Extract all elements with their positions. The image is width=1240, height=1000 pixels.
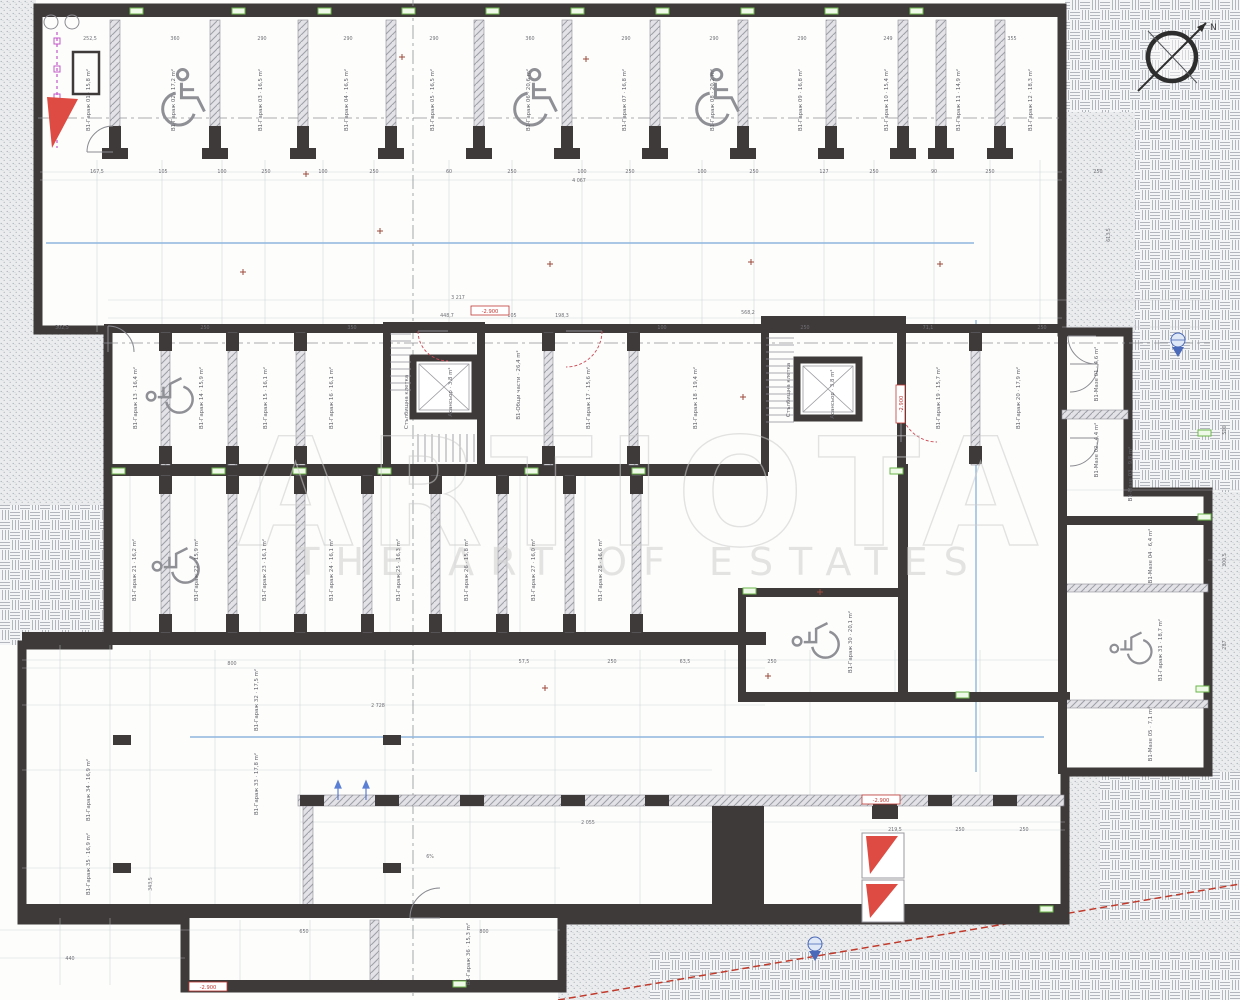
dim-label: 167,5 — [90, 169, 104, 175]
brand-watermark: ARTIOTA THE ART OF ESTATES — [237, 407, 1052, 584]
dim-label: 250 — [749, 169, 758, 175]
room-label: В1-Гараж 23 · 16,1 m² — [261, 539, 268, 601]
floor-plan-svg: N ARTIOTA THE ART OF ESTATES 252,5360290… — [0, 0, 1240, 1000]
dim-label: 290 — [797, 36, 806, 42]
dim-label: 252,5 — [83, 36, 97, 42]
room-label: В1-Мазе 01 · 4,6 m² — [1093, 347, 1100, 402]
room-label: В1-Гараж 13 · 16,4 m² — [132, 367, 139, 429]
room-label: В1-Гараж 33 · 17,8 m² — [253, 753, 260, 815]
svg-text:-2.900: -2.900 — [482, 309, 499, 315]
dim-label: 448,7 — [440, 313, 454, 319]
level-badge: -2.900 — [471, 306, 509, 315]
dim-label: 290 — [429, 36, 438, 42]
room-label: В1-Гараж 11 · 14,9 m² — [955, 69, 962, 131]
room-label: В1-Мазе 05 · 7,1 m² — [1147, 707, 1154, 762]
dim-label: 250 — [369, 169, 378, 175]
svg-text:-2.900: -2.900 — [200, 985, 217, 991]
dim-label: 290 — [343, 36, 352, 42]
dim-label: 650 — [299, 929, 308, 935]
level-badge: -2.900 — [896, 385, 905, 423]
dim-label: 2 055 — [581, 820, 595, 826]
room-label: В1-Гараж 02 · 17,2 m² — [170, 69, 177, 131]
room-label: В1-Гараж 08 · 20,2 m² — [709, 69, 716, 131]
dim-label: 350 — [347, 325, 356, 331]
dim-label: 290 — [257, 36, 266, 42]
dim-label: 360 — [170, 36, 179, 42]
dim-label: 127 — [819, 169, 828, 175]
dim-label: 250 — [1037, 325, 1046, 331]
north-label: N — [1210, 23, 1217, 33]
room-label: В1-Гараж 06 · 20,6 m² — [525, 69, 532, 131]
dim-label: 300,5 — [1222, 553, 1228, 567]
dim-label: 100 — [657, 325, 666, 331]
room-label: Стълбищна клетка — [404, 375, 410, 429]
dim-label: 290 — [709, 36, 718, 42]
dim-label: 249 — [883, 36, 892, 42]
dim-label: 100 — [217, 169, 226, 175]
dim-label: 250 — [955, 827, 964, 833]
dim-label: 613,5 — [1106, 228, 1112, 242]
room-label: В1-Гараж 05 · 16,5 m² — [429, 69, 436, 131]
dim-label: 57,5 — [519, 659, 530, 665]
dim-label: 568,2 — [741, 310, 755, 316]
dim-label: 100 — [697, 169, 706, 175]
room-label: В1-Гараж 19 · 15,7 m² — [935, 367, 942, 429]
dim-label: 250 — [625, 169, 634, 175]
dim-label: 800 — [479, 929, 488, 935]
room-label: В1-Гараж 26 · 15,8 m² — [463, 539, 470, 601]
room-label: В1-Мазе 02 · 4,4 m² — [1093, 423, 1100, 478]
room-label: В1-Гараж 35 · 16,9 m² — [85, 833, 92, 895]
dim-label: 60 — [446, 169, 452, 175]
room-label: В1-Гараж 01 · 15,8 m² — [85, 69, 92, 131]
dim-label: 219,5 — [888, 827, 902, 833]
room-label: В1-Гараж 34 · 16,9 m² — [85, 759, 92, 821]
dim-label: 290 — [621, 36, 630, 42]
dim-label: 250 — [200, 325, 209, 331]
dim-label: 63,5 — [680, 659, 691, 665]
room-label: В1-Гараж 12 · 18,3 m² — [1027, 69, 1034, 131]
dim-label: 250 — [261, 169, 270, 175]
room-label: В1-Общи части · 26,4 m² — [515, 350, 522, 419]
room-label: В1-Гараж 03 · 16,5 m² — [257, 69, 264, 131]
dim-label: 360 — [525, 36, 534, 42]
dim-label: 250 — [1019, 827, 1028, 833]
dim-label: 287 — [1222, 640, 1228, 649]
dim-label: 500 — [1222, 425, 1228, 434]
dim-label: 250 — [507, 169, 516, 175]
room-label: В1-Гараж 14 · 15,9 m² — [198, 367, 205, 429]
dim-label: 105 — [158, 169, 167, 175]
room-label: В1-Мазе 03 · 9,8 m² — [1127, 447, 1134, 502]
dim-label: 100 — [577, 169, 586, 175]
dim-label: 71,1 — [923, 325, 934, 331]
room-label: В1-Гараж 09 · 16,8 m² — [797, 69, 804, 131]
dim-label: 250 — [767, 659, 776, 665]
room-label: В1-Гараж 27 · 16,0 m² — [530, 539, 537, 601]
room-label: В1-Гараж 36 · 15,3 m² — [465, 923, 472, 985]
dim-label: 6% — [426, 854, 434, 860]
room-label: В1-Гараж 18 · 19,4 m² — [692, 367, 699, 429]
room-label: В1-Гараж 22 · 15,9 m² — [193, 539, 200, 601]
room-label: В1-Гараж 31 · 18,7 m² — [1157, 619, 1164, 681]
dim-label: 100 — [318, 169, 327, 175]
room-label: В1-Гараж 17 · 15,6 m² — [585, 367, 592, 429]
dim-label: 250 — [1093, 169, 1102, 175]
room-label: Стълбищна клетка — [786, 363, 792, 417]
room-label: В1-Гараж 20 · 17,9 m² — [1015, 367, 1022, 429]
dim-label: 440 — [65, 956, 74, 962]
dim-label: 250 — [607, 659, 616, 665]
room-label: В1-Гараж 25 · 16,3 m² — [395, 539, 402, 601]
dim-label: 198,3 — [555, 313, 569, 319]
room-label: В1-Гараж 32 · 17,5 m² — [253, 669, 260, 731]
room-label: В1-Гараж 16 · 16,1 m² — [328, 367, 335, 429]
dim-label: 4 067 — [572, 178, 586, 184]
room-label: В1-Гараж 07 · 16,8 m² — [621, 69, 628, 131]
svg-text:-2.900: -2.900 — [873, 798, 890, 804]
level-badge: -2.900 — [189, 982, 227, 991]
room-label: В1-Мазе 04 · 6,4 m² — [1147, 529, 1154, 584]
dim-label: 343,5 — [148, 877, 154, 891]
room-label: В1-Гараж 15 · 16,1 m² — [262, 367, 269, 429]
room-label: В1-Гараж 21 · 16,2 m² — [131, 539, 138, 601]
room-label: Асансьор · 3,8 m² — [447, 367, 454, 416]
dim-label: 302,5 — [55, 325, 69, 331]
room-label: В1-Гараж 30 · 20,1 m² — [847, 611, 854, 673]
dim-label: 250 — [800, 325, 809, 331]
room-label: Асансьор · 3,8 m² — [829, 369, 836, 418]
floor-plan-page: { "title": "Underground garage level flo… — [0, 0, 1240, 1000]
dim-label: 3 217 — [451, 295, 465, 301]
room-label: В1-Гараж 28 · 16,6 m² — [597, 539, 604, 601]
dim-label: 250 — [985, 169, 994, 175]
dim-label: 355 — [1007, 36, 1016, 42]
dim-label: 90 — [931, 169, 937, 175]
svg-text:-2.900: -2.900 — [899, 396, 905, 413]
level-badge: -2.900 — [862, 795, 900, 804]
room-label: В1-Гараж 10 · 15,4 m² — [883, 69, 890, 131]
dim-label: 800 — [227, 661, 236, 667]
room-label: В1-Гараж 04 · 16,5 m² — [343, 69, 350, 131]
dim-label: 250 — [869, 169, 878, 175]
room-label: В1-Гараж 24 · 16,1 m² — [328, 539, 335, 601]
dim-label: 2 728 — [371, 703, 385, 709]
